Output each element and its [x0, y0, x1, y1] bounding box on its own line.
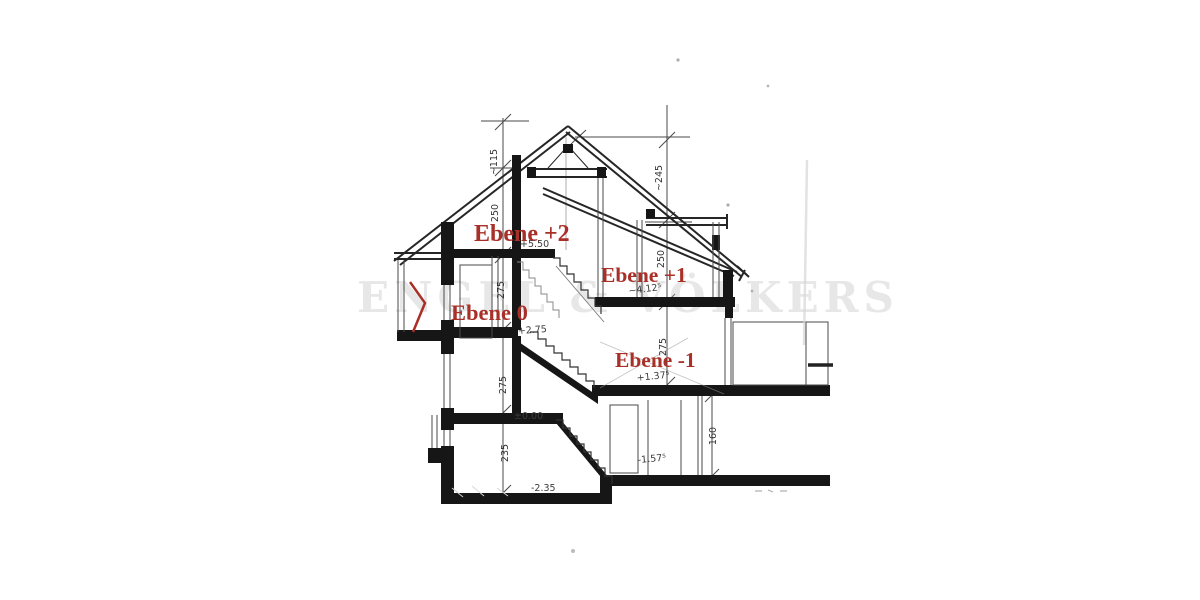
elevation-mark-minus235: -2.35 [531, 483, 556, 494]
section-drawing-svg: ENGEL & VÖLKERS [0, 0, 1200, 600]
elevation-mark-1375: +1.37⁵ [636, 370, 670, 384]
elevation-mark-000: ±0.00 [514, 411, 543, 422]
dim-right-160: 160 [708, 427, 719, 445]
level-label-ebene-minus1: Ebene -1 [615, 348, 696, 372]
elevation-mark-minus1575: -1.57⁵ [637, 453, 666, 466]
scanned-section-drawing: ENGEL & VÖLKERS [0, 0, 1200, 600]
roof-blocks [527, 144, 655, 218]
dim-right-250: 250 [656, 250, 667, 268]
elevation-mark-275: +2.75 [517, 324, 547, 337]
dim-right-245: ~245 [654, 165, 665, 191]
dim-roof-115: ~115 [489, 149, 500, 175]
dim-left-275-lower: 275 [498, 376, 509, 394]
elevation-mark-550: +5.50 [520, 239, 549, 250]
dim-left-275-upper: 275 [496, 281, 507, 299]
level-label-ebene-0: Ebene 0 [451, 300, 528, 325]
dim-left-235: 235 [500, 444, 511, 462]
dim-left-250: 250 [490, 204, 501, 222]
dim-right-275: 275 [658, 338, 669, 356]
